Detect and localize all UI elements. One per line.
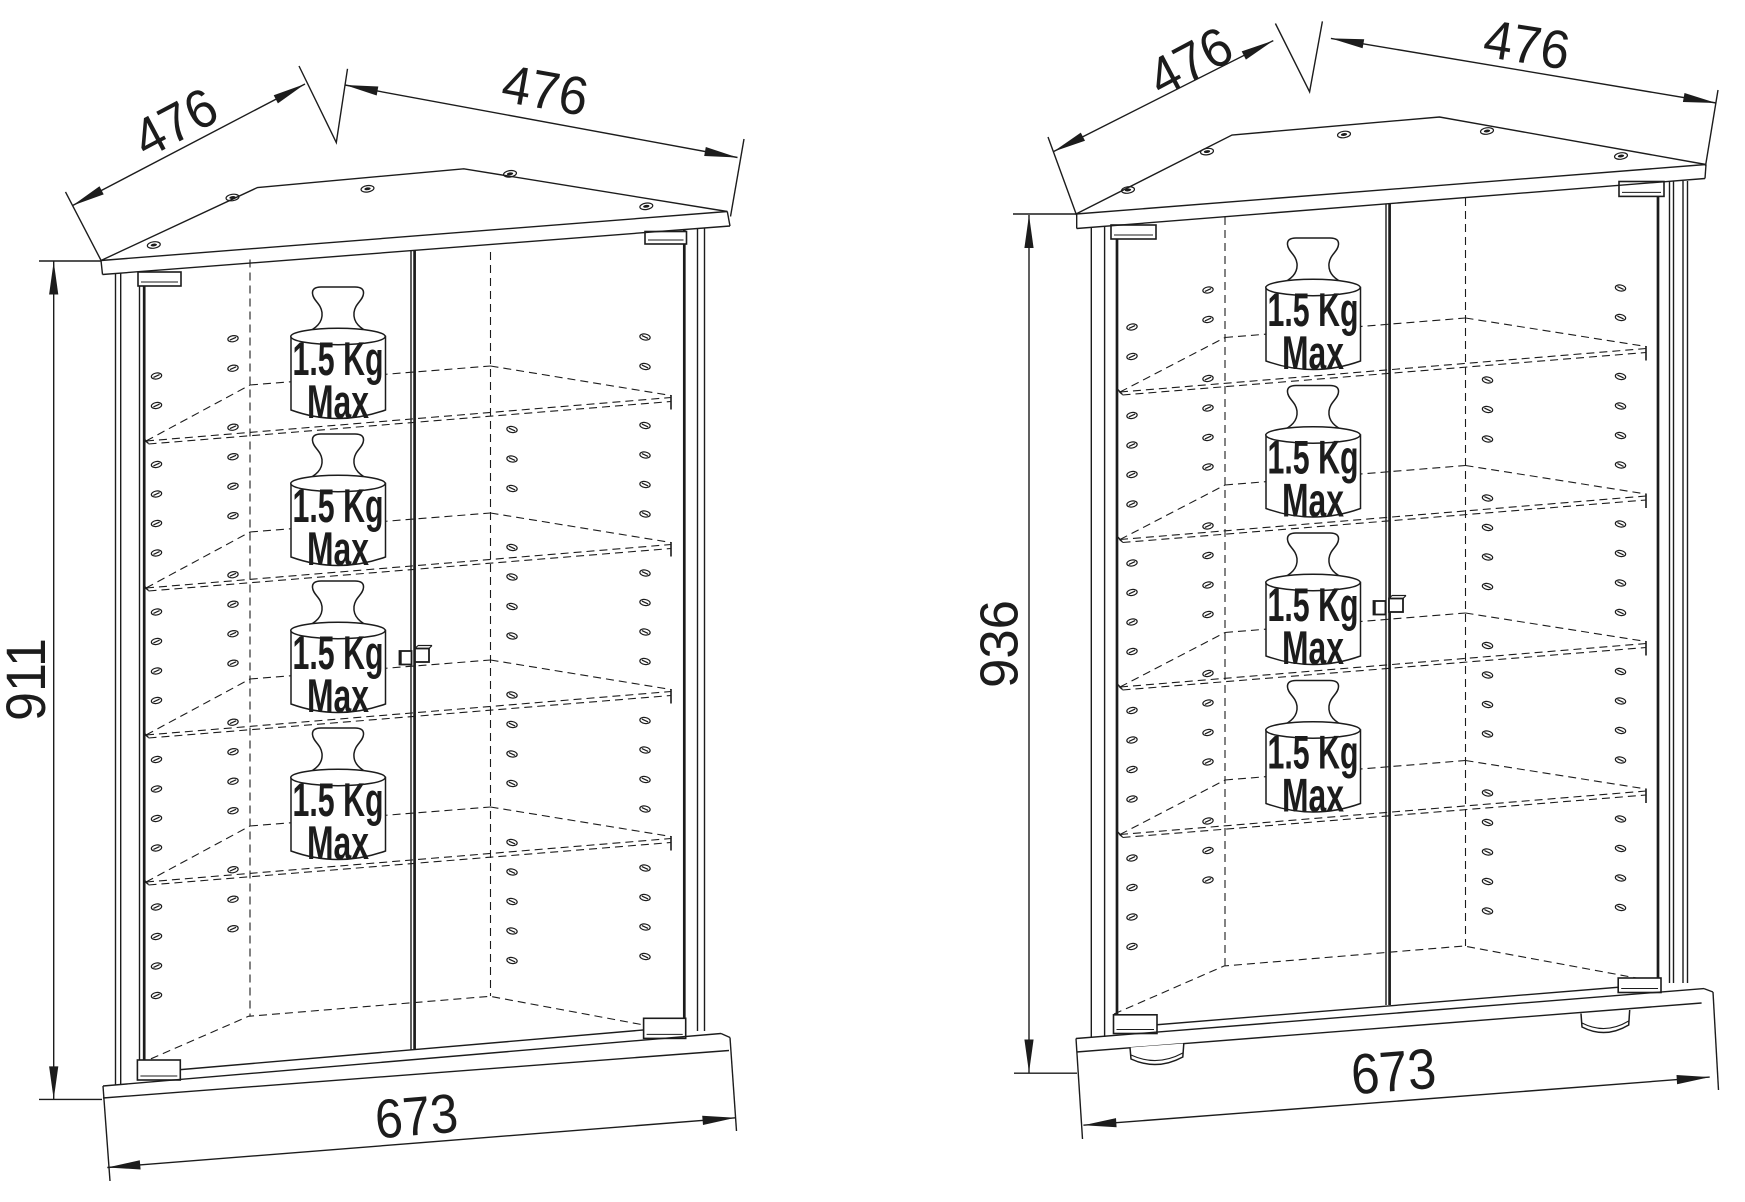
svg-text:Max: Max [307, 669, 369, 722]
svg-text:Max: Max [307, 816, 369, 869]
svg-text:Max: Max [1282, 326, 1344, 379]
svg-text:673: 673 [1349, 1037, 1439, 1107]
svg-text:Max: Max [307, 375, 369, 428]
svg-text:936: 936 [970, 600, 1030, 688]
svg-text:Max: Max [1282, 621, 1344, 674]
svg-text:Max: Max [1282, 769, 1344, 822]
svg-text:Max: Max [307, 522, 369, 575]
svg-text:673: 673 [372, 1082, 460, 1151]
svg-text:911: 911 [0, 638, 57, 721]
svg-text:Max: Max [1282, 474, 1344, 527]
